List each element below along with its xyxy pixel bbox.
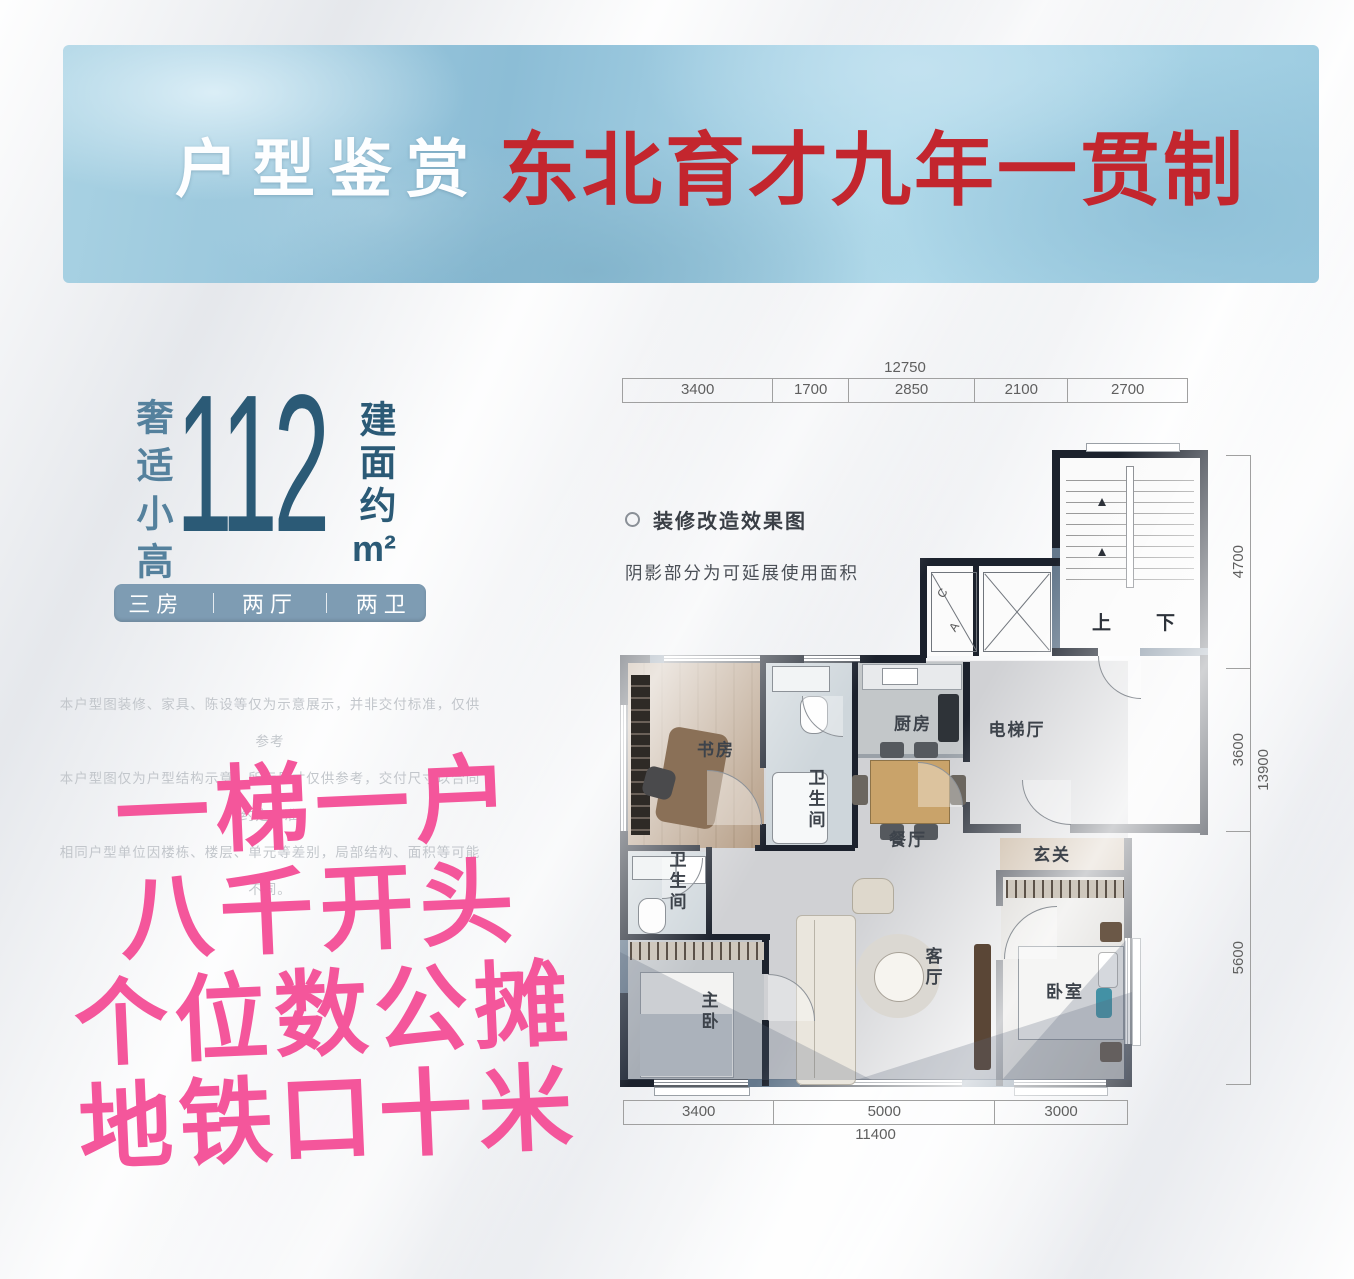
room-label-foyer: 玄关 — [1033, 841, 1071, 866]
vertical-tagline: 奢适小高 — [128, 398, 175, 590]
wall-segment — [620, 993, 628, 1086]
dim-bottom: 34005000300011400 — [623, 1100, 1128, 1145]
dining-chair — [852, 775, 868, 805]
badge-item-baths: 两卫 — [356, 587, 412, 619]
poster: 户型鉴赏 东北育才九年一贯制 奢适小高 112 建面约 m² 三房 两厅 两卫 … — [0, 0, 1354, 1279]
wall-segment — [1140, 648, 1208, 656]
bookshelf — [631, 675, 650, 835]
plan-note: 阴影部分为可延展使用面积 — [625, 560, 859, 585]
room-label-bath1: 卫生间 — [803, 769, 828, 832]
kitchen-counter-edge — [858, 754, 963, 758]
wall-segment — [620, 934, 770, 940]
bed-bedroom-pillow — [1098, 952, 1118, 988]
room-label-elevator-hall: 电梯厅 — [989, 716, 1046, 741]
wardrobe-bedroom — [1006, 880, 1124, 898]
wall-segment — [762, 1020, 769, 1086]
wall-segment — [962, 1079, 1014, 1087]
stove — [938, 694, 959, 742]
stair-direction-arrow — [1098, 548, 1106, 556]
area-prefix: 建面约 — [352, 400, 396, 529]
stair-rail — [1126, 466, 1134, 588]
sofa-cushion-line — [814, 920, 815, 1078]
wall-segment — [755, 845, 855, 851]
wall-segment — [1064, 870, 1132, 877]
wall-segment — [650, 655, 664, 663]
wall-segment — [996, 870, 1066, 877]
window — [1014, 1079, 1106, 1087]
wall-segment — [1052, 450, 1060, 548]
badge-divider — [326, 593, 327, 613]
coffee-table — [874, 952, 924, 1002]
wardrobe-master — [630, 942, 764, 960]
room-label-kitchen: 厨房 — [894, 710, 932, 735]
room-label-master-bedroom: 主卧 — [696, 991, 721, 1033]
room-label-bath2: 卫生间 — [664, 851, 689, 914]
wall-segment — [963, 824, 1021, 833]
elevator-icon — [983, 572, 1051, 652]
duct-icon — [931, 572, 977, 652]
wall-segment — [760, 655, 804, 663]
banner-title: 户型鉴赏 — [175, 119, 483, 210]
wall-segment — [920, 558, 927, 658]
wall-segment — [1124, 838, 1132, 938]
bay-window — [1086, 443, 1180, 452]
wall-segment — [1052, 648, 1098, 656]
room-count-badge: 三房 两厅 两卫 — [114, 584, 426, 622]
wall-segment — [1200, 655, 1208, 835]
badge-item-halls: 两厅 — [242, 587, 298, 619]
window — [1124, 938, 1132, 1044]
disclaimer-line: 本户型图装修、家具、陈设等仅为示意展示，并非交付标准，仅供参考 — [58, 686, 482, 760]
bay-window — [1014, 1087, 1108, 1096]
legend-title: 装修改造效果图 — [653, 505, 807, 534]
nightstand — [1100, 1042, 1122, 1062]
wall-segment — [620, 1079, 654, 1087]
stair-direction-arrow — [1098, 498, 1106, 506]
window — [664, 655, 760, 663]
area-value: 112 — [176, 356, 326, 571]
bay-window — [654, 1087, 750, 1096]
wall-segment — [748, 1079, 800, 1087]
wall-segment — [920, 558, 1060, 566]
stair-up-label: 上 — [1092, 608, 1111, 635]
area-prefix-wrap: 建面约 — [352, 400, 396, 529]
wall-segment — [996, 960, 1003, 1086]
badge-item-rooms: 三房 — [128, 587, 184, 619]
wall-segment — [706, 847, 712, 940]
area-unit: m² — [352, 528, 396, 570]
wall-segment — [860, 655, 926, 663]
window — [654, 1079, 748, 1087]
badge-divider — [213, 593, 214, 613]
slogans: 一梯一户 八千开头 个位数公摊 地铁口十米 — [25, 744, 619, 1185]
bath1-sink — [772, 666, 830, 692]
room-label-bedroom: 卧室 — [1046, 978, 1084, 1003]
bath2-toilet — [638, 898, 666, 934]
room-label-dining: 餐厅 — [889, 826, 927, 851]
wall-segment — [760, 662, 766, 768]
dim-right: 47003600560013900 — [1226, 455, 1276, 1085]
wall-segment — [963, 802, 970, 826]
wall-segment — [1200, 450, 1208, 663]
wall-segment — [620, 935, 628, 993]
wall-segment — [1124, 1044, 1132, 1087]
room-label-study: 书房 — [697, 736, 735, 761]
nightstand — [1100, 922, 1122, 942]
bed-bedroom-accent-pillow — [1096, 988, 1112, 1018]
dim-top: 1275034001700285021002700 — [622, 358, 1188, 403]
dining-chair — [914, 742, 938, 758]
armchair — [852, 878, 894, 914]
wall-segment — [620, 655, 628, 705]
wall-segment — [996, 876, 1003, 906]
stair-down-label: 下 — [1156, 608, 1175, 635]
tv-console — [974, 944, 991, 1070]
banner-subtitle: 东北育才九年一贯制 — [499, 106, 1246, 222]
legend-ring-icon — [625, 512, 640, 527]
banner: 户型鉴赏 东北育才九年一贯制 — [63, 45, 1319, 283]
plan-legend: 装修改造效果图 — [625, 505, 807, 534]
bay-window — [1132, 938, 1141, 1046]
room-label-living-room: 客厅 — [920, 947, 945, 989]
dining-chair — [880, 742, 904, 758]
kitchen-sink — [882, 668, 918, 685]
window — [620, 705, 628, 831]
wall-segment — [1070, 824, 1208, 833]
wall-segment — [963, 662, 970, 762]
